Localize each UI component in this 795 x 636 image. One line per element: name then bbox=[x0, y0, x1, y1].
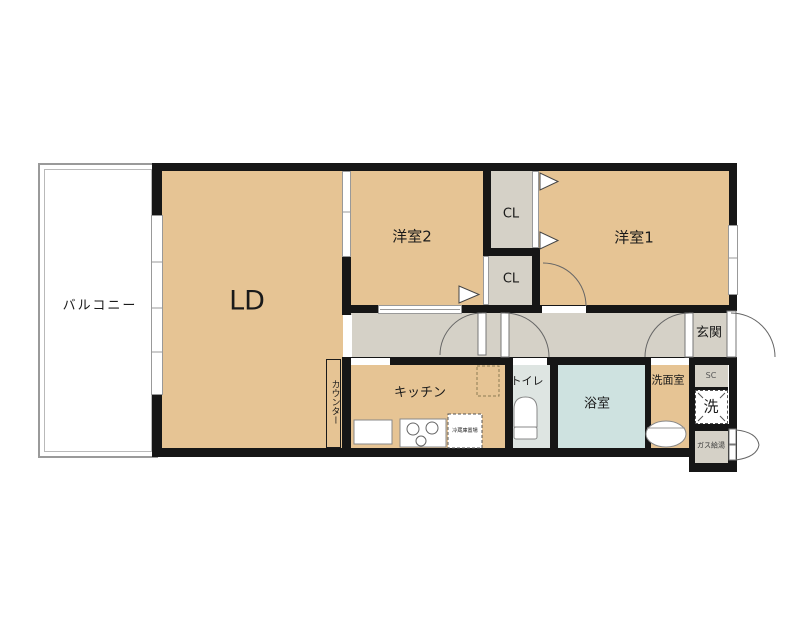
label-shoe-closet: SC bbox=[706, 372, 717, 380]
washbasin-icon bbox=[646, 421, 686, 447]
door-arc-western1 bbox=[543, 263, 586, 306]
toilet-tank-icon bbox=[514, 427, 537, 439]
label-closet-lower: CL bbox=[503, 273, 519, 286]
label-laundry: 洗 bbox=[703, 400, 718, 415]
label-counter: カウンター bbox=[330, 380, 339, 425]
label-toilet: トイレ bbox=[511, 376, 544, 387]
label-kitchen: キッチン bbox=[394, 387, 446, 400]
door-arc-toilet bbox=[505, 313, 549, 357]
label-washroom: 洗面室 bbox=[652, 375, 685, 386]
floor-plan: バルコニー LD 洋室2 洋室1 CL CL 玄関 キッチン トイレ 浴室 洗面… bbox=[0, 0, 795, 636]
door-leaf-entrance bbox=[727, 311, 736, 357]
kitchen-sink bbox=[354, 420, 392, 444]
gas-door-arc-top bbox=[736, 430, 759, 445]
door-arc-kitchen bbox=[440, 313, 482, 355]
label-balcony: バルコニー bbox=[63, 300, 138, 313]
closet-lower-door-marker bbox=[459, 286, 479, 303]
gas-door-leaf-top bbox=[729, 429, 736, 444]
label-closet-upper: CL bbox=[503, 208, 519, 221]
closet-upper-door-marker-2 bbox=[540, 232, 558, 249]
label-western-2: 洋室2 bbox=[392, 230, 432, 245]
kitchen-reserve-box bbox=[477, 366, 499, 396]
label-bathroom: 浴室 bbox=[584, 398, 610, 411]
label-gas-heater: ガス給湯 bbox=[697, 443, 725, 450]
gas-door-leaf-bottom bbox=[729, 445, 736, 460]
closet-upper-door-marker-1 bbox=[540, 173, 558, 190]
gas-door-arc-bottom bbox=[736, 445, 759, 460]
door-arc-entrance bbox=[731, 313, 775, 357]
label-refrigerator: 冷蔵庫置場 bbox=[452, 428, 478, 433]
plan-symbols bbox=[0, 0, 795, 636]
toilet-bowl-icon bbox=[514, 397, 537, 427]
door-arc-hall bbox=[645, 313, 689, 357]
label-entrance: 玄関 bbox=[696, 327, 722, 340]
door-leaf-kitchen bbox=[478, 313, 486, 355]
label-western-1: 洋室1 bbox=[614, 231, 654, 246]
door-leaf-toilet bbox=[501, 313, 509, 357]
kitchen-stove bbox=[400, 419, 446, 447]
label-living-dining: LD bbox=[229, 288, 265, 315]
door-leaf-hall bbox=[685, 313, 693, 357]
